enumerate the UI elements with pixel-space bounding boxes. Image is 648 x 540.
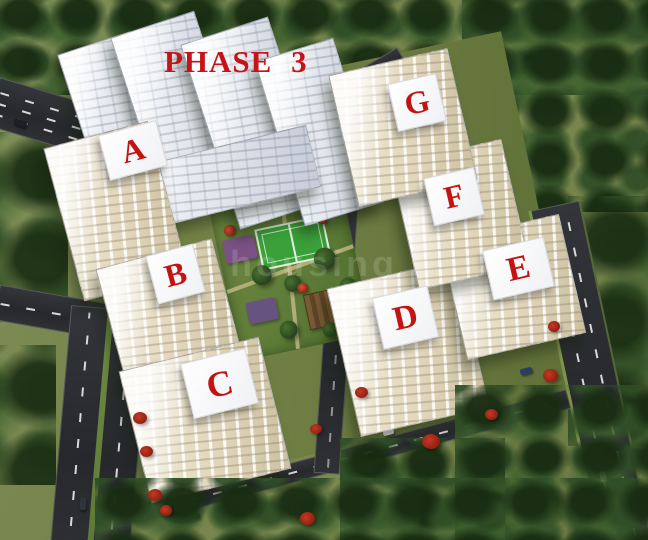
building-label: G xyxy=(401,82,434,124)
building-label: C xyxy=(202,360,237,407)
flower-tree xyxy=(548,321,560,332)
playground-area xyxy=(245,297,279,325)
flower-bush xyxy=(223,224,237,237)
flower-tree xyxy=(140,446,153,457)
tree-belt-left-lower xyxy=(0,345,56,485)
building-label: E xyxy=(503,247,534,289)
flower-tree xyxy=(543,369,558,382)
flower-tree xyxy=(355,387,368,398)
flower-tree xyxy=(310,424,322,434)
phase-title: PHASE 3 xyxy=(164,44,308,80)
flower-tree xyxy=(133,412,147,424)
flower-tree xyxy=(148,489,162,501)
building-label: B xyxy=(160,253,190,294)
building-label: A xyxy=(117,130,149,172)
building-label: F xyxy=(440,176,467,216)
flower-tree xyxy=(300,512,315,525)
aerial-site-render: A B C D E F G PHASE 3 housing xyxy=(0,0,648,540)
building-label: D xyxy=(389,296,421,339)
flower-tree xyxy=(160,505,172,516)
flower-tree xyxy=(422,434,440,449)
car xyxy=(79,498,86,510)
flower-tree xyxy=(485,409,498,420)
watermark: housing xyxy=(230,243,398,285)
tree-belt-bottom xyxy=(95,478,648,540)
